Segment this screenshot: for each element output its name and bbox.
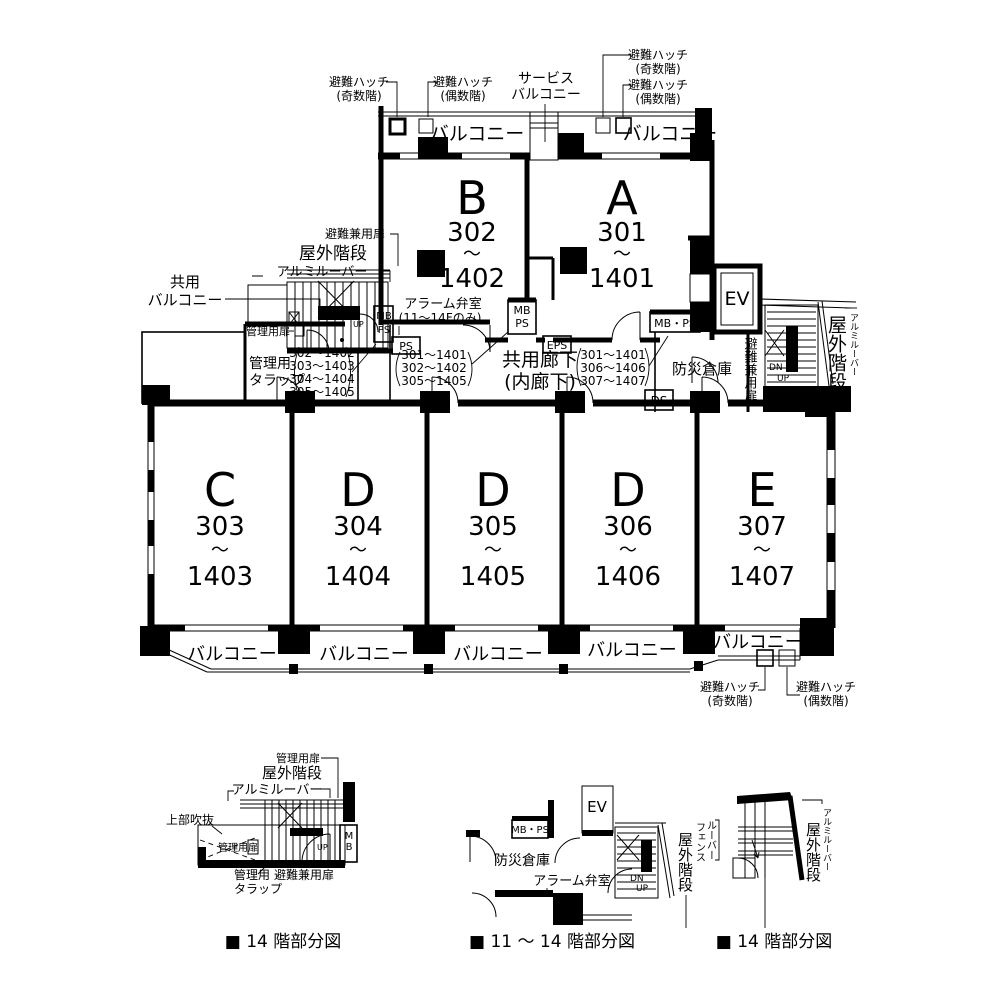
svg-text:306: 306	[603, 512, 653, 542]
d1-admin-door-inner-label: 管理用扉	[218, 841, 258, 854]
svg-text:D: D	[340, 463, 375, 517]
escape-hatch-odd-right	[596, 118, 610, 133]
corridor-label-2: (内廊下)	[504, 371, 576, 393]
unit-label-E: E 307 ～ 1407	[729, 463, 795, 592]
up-label-left-stair: UP	[353, 320, 364, 329]
unit-label-D1: D 304 ～ 1404	[325, 463, 391, 592]
hatch-odd-label-1b: (奇数階)	[336, 88, 381, 103]
detail-diagram-14f-left: 管理用扉 屋外階段 アルミルーバー 上部吹抜 管理用扉 UP MB 管理用 タラ…	[166, 751, 357, 896]
d2-alarm-label: アラーム弁室	[533, 873, 611, 889]
svg-text:305: 305	[468, 512, 518, 542]
svg-text:～: ～	[349, 540, 367, 561]
svg-text:1403: 1403	[187, 562, 253, 592]
svg-text:～: ～	[484, 540, 502, 561]
hatch-even-label-2a: 避難ハッチ	[628, 77, 688, 92]
svg-text:E: E	[747, 463, 776, 517]
unit-tilde-A: ～	[613, 244, 631, 265]
d2-louver1-label: ルーバー	[705, 820, 717, 860]
svg-text:～: ～	[211, 540, 229, 561]
svg-text:304: 304	[333, 512, 383, 542]
up-label-right-stair: UP	[777, 374, 790, 384]
balcony-label-d2: バルコニー	[453, 644, 543, 665]
unit-list-mid-0: 301～1401	[401, 348, 466, 362]
ps-label-stair: PS	[378, 325, 390, 336]
hatch-even-label-1a: 避難ハッチ	[433, 74, 493, 89]
caption-left: ■ 14 階部分図	[225, 932, 342, 952]
unit-to-A: 1401	[589, 264, 655, 294]
d1-outdoor-stair-label: 屋外階段	[262, 764, 322, 782]
unit-to-B: 1402	[439, 264, 505, 294]
balcony-label-c: バルコニー	[187, 644, 277, 665]
d2-ev-label: EV	[587, 798, 607, 816]
escape-door-label-left: 避難兼用扉	[325, 226, 385, 241]
unit-list-left-2: 304～1404	[289, 372, 354, 386]
lower-unit-labels: C 303 ～ 1403 D 304 ～ 1404 D 305 ～ 1405 D…	[187, 463, 795, 592]
hatch-even-label-2b: (偶数階)	[635, 91, 680, 106]
svg-text:303: 303	[195, 512, 245, 542]
corridor-label-1: 共用廊下	[502, 349, 578, 371]
alarm-room-label: アラーム弁室	[404, 296, 482, 312]
unit-tilde-B: ～	[463, 244, 481, 265]
hatch-odd-label-2a: 避難ハッチ	[628, 47, 688, 62]
floorplan-drawing: バルコニー バルコニー 避難ハッチ (奇数階) 避難ハッチ (偶数階) サービス…	[0, 0, 1000, 1000]
disaster-storage-label: 防災倉庫	[672, 360, 732, 378]
unit-letter-A: A	[606, 171, 638, 225]
balcony-label-d3: バルコニー	[587, 640, 677, 661]
door-arc-unit-a	[612, 312, 640, 340]
hatch-even-label-3b: (偶数階)	[803, 693, 848, 708]
mbps-shaft-center: MB PS	[508, 300, 536, 334]
hatch-odd-label-2b: (奇数階)	[635, 61, 680, 76]
escape-door-label-right: 避難兼用扉	[742, 337, 758, 402]
hatch-even-label-3a: 避難ハッチ	[796, 679, 856, 694]
d2-disaster-label: 防災倉庫	[494, 852, 550, 869]
d1-louver-label: アルミルーバー	[232, 783, 323, 798]
d2-up-label: UP	[636, 884, 649, 894]
svg-text:D: D	[610, 463, 645, 517]
outdoor-stair-label-left: 屋外階段	[299, 244, 367, 264]
louver-label-left: アルミルーバー	[277, 265, 368, 280]
shared-balcony-label-2: バルコニー	[148, 291, 223, 309]
mbps-label-right: MB・PS	[654, 317, 696, 330]
dn-label-right-stair: DN	[769, 363, 783, 373]
louver-label-right: アルミルーバー	[848, 313, 859, 376]
hatch-even-label-1b: (偶数階)	[440, 88, 485, 103]
d3-outdoor-stair-label: 屋外階段	[804, 822, 822, 882]
outdoor-stair-right: DN UP 屋外階段 アルミルーバー	[760, 299, 859, 412]
shared-balcony-label-1: 共用	[170, 273, 200, 291]
d2-door-arc-bottom	[472, 893, 496, 917]
svg-text:1406: 1406	[595, 562, 661, 592]
detail-diagram-11-14f-middle: EV MB・PS 防災倉庫 アラーム弁室 DN UP 屋外階段 ルーバー フェン…	[466, 786, 719, 928]
unit-list-right-0: 301～1401	[580, 348, 645, 362]
outdoor-stair-label-right: 屋外階段	[825, 315, 847, 391]
d1-admin1-label: 管理用	[234, 867, 270, 882]
unit-list-right-1: 306～1406	[580, 361, 645, 375]
unit-label-D3: D 306 ～ 1406	[595, 463, 661, 592]
unit-room-A: A 301 ～ 1401	[527, 133, 714, 340]
unit-list-left-1: 303～1403	[289, 359, 354, 373]
svg-text:307: 307	[737, 512, 787, 542]
unit-list-mid-1: 302～1402	[401, 361, 466, 375]
d2-louver2-label: フェンス	[694, 822, 705, 862]
caption-middle: ■ 11 ～ 14 階部分図	[469, 932, 635, 952]
svg-text:C: C	[204, 463, 236, 517]
d2-door-arc-left	[470, 836, 496, 862]
svg-text:～: ～	[619, 540, 637, 561]
detail-diagram-14f-right: 屋外階段 アルミルーバー	[733, 792, 832, 928]
d1-up-label: UP	[317, 843, 328, 852]
svg-text:～: ～	[753, 540, 771, 561]
mb-label-center: MB	[513, 304, 530, 317]
unit-list-mid-2: 305～1405	[401, 374, 466, 388]
captions: ■ 14 階部分図 ■ 11 ～ 14 階部分図 ■ 14 階部分図	[225, 932, 833, 952]
alarm-valve-room: アラーム弁室 (11～14Fのみ) PS 301～1401 302～1402 3…	[390, 296, 508, 403]
caption-right: ■ 14 階部分図	[716, 932, 833, 952]
svg-text:1405: 1405	[460, 562, 526, 592]
ev-label: EV	[724, 288, 749, 310]
outdoor-stair-left: UP MB PS	[287, 270, 393, 352]
d2-mbps-label: MB・PS	[511, 825, 549, 836]
lower-balconies: バルコニー バルコニー バルコニー バルコニー バルコニー 避難ハッチ (奇数階…	[163, 628, 856, 708]
unit-letter-B: B	[456, 171, 488, 225]
svg-text:D: D	[475, 463, 510, 517]
d1-escape-door-label: 避難兼用扉	[274, 867, 334, 882]
balcony-label-d1: バルコニー	[319, 644, 409, 665]
d1-admin-door-top-label: 管理用扉	[276, 751, 320, 765]
shared-corridor: EPS 共用廊下 (内廊下) 301～1401 306～1406 307～140…	[485, 336, 668, 393]
d2-door-arc-storage	[555, 838, 580, 863]
d1-admin2-label: タラップ	[234, 882, 282, 896]
mb-label-stair: MB	[376, 311, 392, 322]
svg-text:1407: 1407	[729, 562, 795, 592]
alarm-floors-label: (11～14Fのみ)	[399, 311, 482, 325]
floorplan-page: バルコニー バルコニー 避難ハッチ (奇数階) 避難ハッチ (偶数階) サービス…	[0, 0, 1000, 1000]
upper-balconies: バルコニー バルコニー	[378, 106, 717, 168]
unit-label-C: C 303 ～ 1403	[187, 463, 253, 592]
d2-outdoor-stair-label: 屋外階段	[676, 832, 694, 892]
service-balcony-label-1: サービス	[518, 71, 574, 87]
admin-tarappu-label-1: 管理用	[249, 356, 291, 372]
balcony-label-b: バルコニー	[430, 123, 525, 145]
escape-hatch-odd-left	[390, 119, 405, 134]
svg-text:1404: 1404	[325, 562, 391, 592]
hatch-odd-label-1a: 避難ハッチ	[329, 74, 389, 89]
service-balcony-label-2: バルコニー	[511, 87, 581, 103]
hatch-odd-label-3a: 避難ハッチ	[700, 679, 760, 694]
ps-label-center: PS	[515, 317, 529, 330]
d1-mb-label: MB	[344, 831, 355, 853]
hatch-odd-label-3b: (奇数階)	[707, 693, 752, 708]
unit-label-D2: D 305 ～ 1405	[460, 463, 526, 592]
unit-list-left-0: 302～1402	[289, 346, 354, 360]
d2-dn-label: DN	[630, 874, 644, 884]
d3-louver-label: アルミルーバー	[821, 808, 832, 871]
unit-list-right-2: 307～1407	[580, 374, 645, 388]
